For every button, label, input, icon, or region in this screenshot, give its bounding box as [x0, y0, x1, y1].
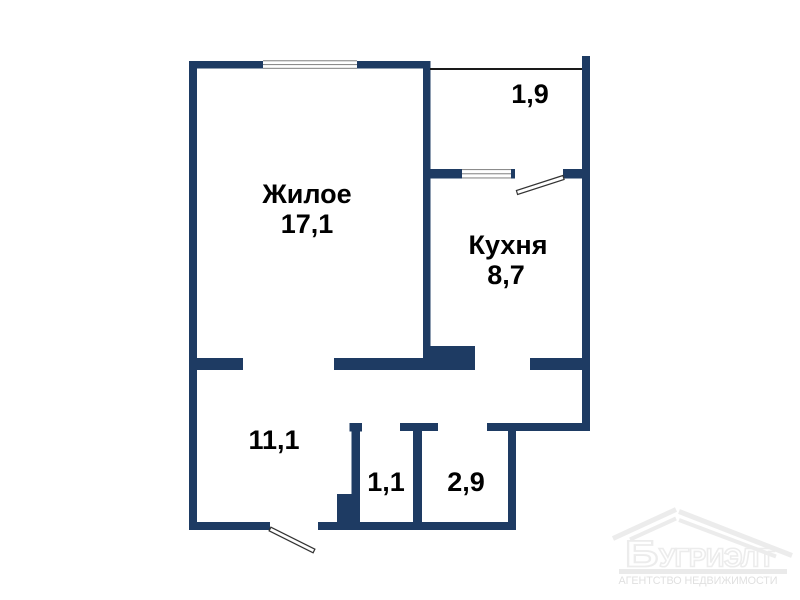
svg-text:2,9: 2,9 — [447, 467, 485, 497]
svg-text:17,1: 17,1 — [281, 209, 334, 239]
svg-text:Жилое: Жилое — [261, 179, 351, 209]
svg-text:11,1: 11,1 — [248, 425, 299, 455]
svg-text:УГРИЭЛТ: УГРИЭЛТ — [659, 543, 775, 573]
svg-text:1,9: 1,9 — [511, 79, 549, 109]
svg-text:8,7: 8,7 — [487, 260, 525, 290]
svg-text:Кухня: Кухня — [469, 230, 548, 260]
svg-text:1,1: 1,1 — [367, 467, 405, 497]
svg-text:АГЕНТСТВО НЕДВИЖИМОСТИ: АГЕНТСТВО НЕДВИЖИМОСТИ — [619, 575, 778, 587]
svg-text:Б: Б — [625, 533, 658, 575]
